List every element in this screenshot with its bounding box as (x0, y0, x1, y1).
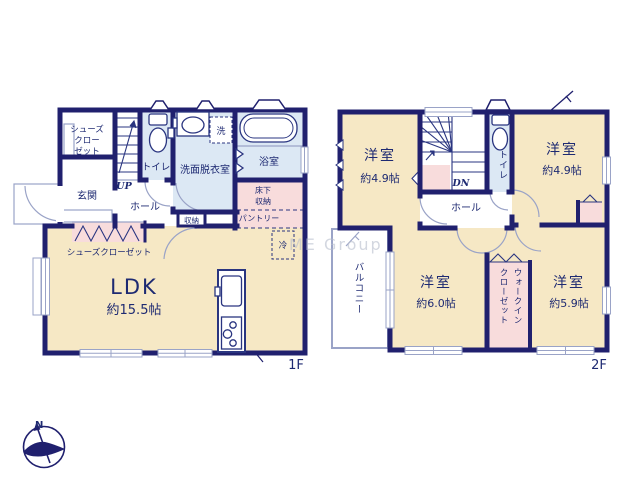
bedroom-nw-size: 約4.9帖 (360, 171, 400, 185)
entrance-door-arc (25, 186, 60, 221)
bedroom-ne-label: 洋室 (546, 141, 578, 158)
compass-north-label: N (35, 420, 43, 431)
stairs-down-label: DN (452, 178, 470, 189)
compass-north-icon: N (23, 420, 65, 468)
wic-label-1: ウォークイン (512, 268, 522, 325)
room-bedroom-nw (340, 112, 420, 228)
bedroom-se-label: 洋室 (553, 274, 585, 291)
underfloor-label-1: 床下 (255, 185, 271, 195)
floor1-label: 1F (288, 358, 304, 373)
entrance-porch (14, 184, 62, 224)
ldk-size-label: 約15.5帖 (107, 303, 162, 318)
toilet-label-2f: トイレ (497, 150, 508, 180)
compass-wing (23, 442, 65, 457)
bedroom-nw-label: 洋室 (364, 147, 396, 164)
shoes-closet-upper-label-3: ゼット (74, 146, 100, 157)
toilet-tank-icon (149, 114, 167, 125)
left-wall-window-marks (336, 140, 343, 190)
balcony-label: バルコニー (353, 262, 365, 315)
toilet-vent-2f (486, 100, 510, 110)
floor2-label: 2F (591, 358, 607, 373)
stairs-up-arrow (119, 121, 134, 173)
room-ldk (45, 226, 305, 353)
bedroom-sw-size: 約6.0帖 (416, 296, 456, 310)
room-wic (487, 262, 530, 350)
toilet-label-1f: トイレ (142, 162, 171, 173)
bedroom-se-size: 約5.9帖 (549, 296, 589, 310)
washroom-label: 洗面脱衣室 (180, 163, 230, 176)
watermark-text: ME Group (289, 235, 383, 254)
fridge-label: 冷 (279, 240, 288, 251)
ldk-label: LDK (110, 275, 158, 299)
toilet-paper-holder-icon (168, 128, 174, 138)
underfloor-label-2: 収納 (255, 196, 271, 206)
hall-label-2f: ホール (451, 202, 481, 214)
bath-label: 浴室 (259, 155, 279, 168)
shoes-closet-upper-label-1: シューズ (70, 124, 104, 135)
entrance-label: 玄関 (77, 189, 97, 202)
washer-label: 洗 (216, 125, 225, 137)
shoes-closet-lower-label: シューズクローゼット (67, 247, 152, 258)
pantry-label: パントリー (239, 214, 279, 223)
kitchen-sink-icon (222, 276, 242, 306)
roof-mark-2f (549, 91, 573, 112)
stairs-up-label: UP (116, 181, 132, 192)
stairs-1f (115, 118, 140, 173)
hall-label-1f: ホール (130, 201, 160, 213)
toilet-bowl-icon (150, 128, 167, 152)
floorplan-drawing: シューズ クロー ゼット 玄関 UP トイレ 洗面脱衣室 洗 浴室 床下 収納 … (0, 0, 640, 480)
entrance-step (63, 210, 112, 222)
stairs-closet (420, 165, 450, 192)
bedroom-ne-size: 約4.9帖 (542, 163, 582, 177)
shoes-closet-upper-label-2: クロー (74, 136, 100, 146)
floor2-plan: 洋室 約4.9帖 洋室 約4.9帖 洋室 約6.0帖 洋室 約5.9帖 DN ホ… (332, 91, 611, 373)
bedroom-ne-closet (578, 202, 602, 225)
floorplan-page: シューズ クロー ゼット 玄関 UP トイレ 洗面脱衣室 洗 浴室 床下 収納 … (0, 0, 640, 480)
storage-label: 収納 (184, 215, 199, 225)
floor1-plan: シューズ クロー ゼット 玄関 UP トイレ 洗面脱衣室 洗 浴室 床下 収納 … (14, 100, 308, 373)
toilet-icon-2f (492, 115, 509, 150)
wic-label-2: クローゼット (498, 268, 508, 325)
bedroom-sw-label: 洋室 (420, 274, 452, 291)
